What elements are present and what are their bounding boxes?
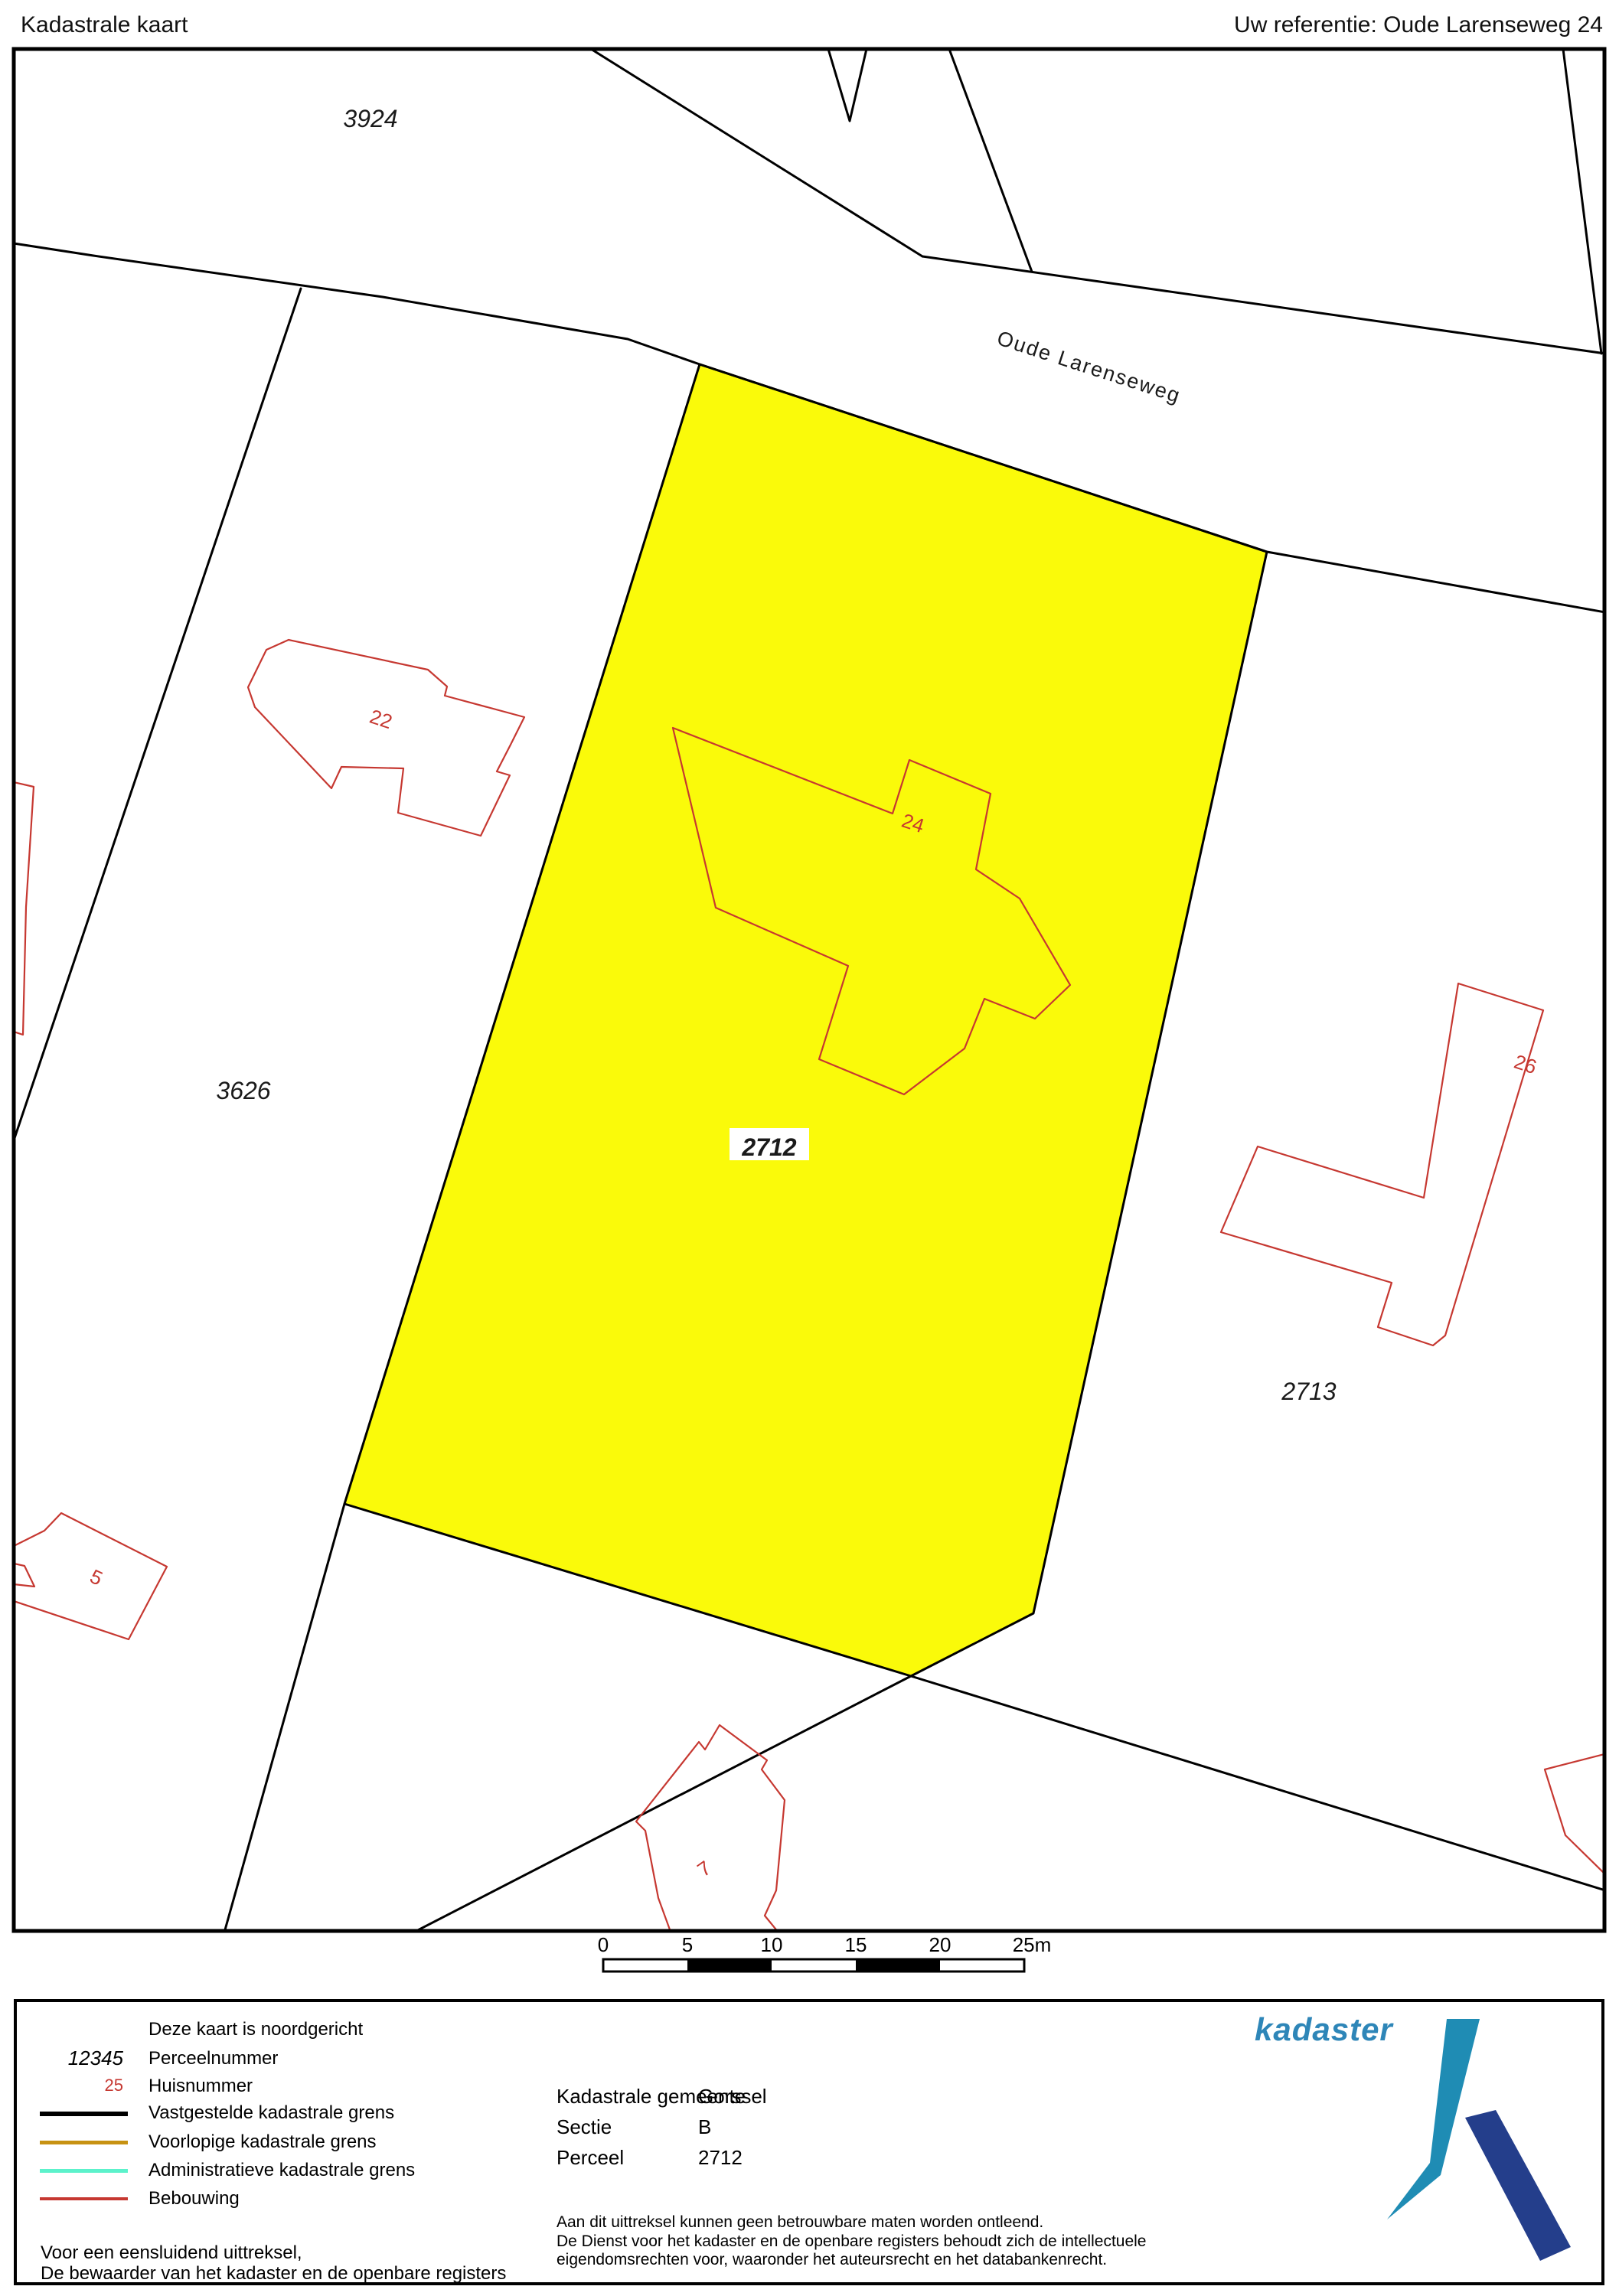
page: { "header": { "title": "Kadastrale kaart… — [0, 0, 1619, 2296]
info-label-sectie: Sectie — [557, 2115, 612, 2139]
road-label: Oude Larenseweg — [994, 326, 1184, 407]
info-value-gemeente: Gorssel — [698, 2085, 767, 2108]
boundary-top-notch — [828, 49, 867, 121]
scalebar-tick-2: 10 — [761, 1933, 783, 1956]
legend-line-buildings — [40, 2197, 128, 2200]
building-22 — [248, 640, 524, 836]
legend-box: Deze kaart is noordgericht 12345 Perceel… — [14, 1999, 1604, 2285]
cadastral-map: 3924 3626 2712 2713 22 24 26 5 7 Oude La… — [0, 0, 1619, 1990]
legend-label-housenumber: Huisnummer — [149, 2076, 253, 2097]
house-label-22: 22 — [367, 705, 395, 733]
legend-sample-parcelnumber: 12345 — [17, 2047, 123, 2070]
legend-line-established-boundary — [40, 2112, 128, 2116]
attestation-line-1: Voor een eensluidend uittreksel, — [41, 2242, 302, 2264]
house-label-7: 7 — [693, 1856, 715, 1881]
disclaimer-line-2: De Dienst voor het kadaster en de openba… — [557, 2232, 1146, 2251]
scalebar-tick-3: 15 — [845, 1933, 867, 1956]
parcel-label-3924: 3924 — [343, 105, 397, 132]
boundary-road-branch — [949, 49, 1032, 272]
parcel-label-2712: 2712 — [741, 1133, 796, 1161]
boundary-3626-west — [14, 289, 301, 1140]
building-left-sliver — [14, 782, 34, 1035]
scalebar-tick-1: 5 — [682, 1933, 693, 1956]
scalebar: 0 5 10 15 20 25m — [598, 1933, 1052, 1971]
legend-label-buildings: Bebouwing — [149, 2188, 240, 2210]
boundary-3924-east — [591, 49, 922, 256]
scalebar-segment-dark-2 — [856, 1959, 940, 1971]
boundary-topright-sliver — [1563, 49, 1601, 354]
info-label-perceel: Perceel — [557, 2146, 624, 2170]
info-value-sectie: B — [698, 2115, 711, 2139]
house-label-26: 26 — [1511, 1050, 1539, 1078]
attestation-line-2: De bewaarder van het kadaster en de open… — [41, 2263, 506, 2285]
kadaster-logo-mark — [1387, 2018, 1571, 2261]
scalebar-tick-0: 0 — [598, 1933, 609, 1956]
parcel-label-2713: 2713 — [1281, 1378, 1336, 1405]
info-value-perceel: 2712 — [698, 2146, 743, 2170]
building-26 — [1221, 983, 1543, 1345]
scalebar-tick-5: 25m — [1013, 1933, 1052, 1956]
logo-mark-dark-stroke — [1465, 2110, 1571, 2261]
legend-line-provisional-boundary — [40, 2141, 128, 2144]
legend-orientation-note: Deze kaart is noordgericht — [149, 2019, 363, 2040]
scalebar-tick-4: 20 — [929, 1933, 951, 1956]
boundary-3626-south — [224, 1504, 344, 1932]
building-bottomright-fragment — [1545, 1754, 1604, 1874]
legend-label-established-boundary: Vastgestelde kadastrale grens — [149, 2102, 394, 2124]
kadaster-logo-text: kadaster — [1255, 2011, 1393, 2048]
legend-line-administrative-boundary — [40, 2169, 128, 2173]
logo-mark-light-stroke — [1387, 2019, 1480, 2219]
parcel-label-3626: 3626 — [216, 1077, 270, 1104]
disclaimer-line-3: eigendomsrechten voor, waaronder het aut… — [557, 2251, 1107, 2269]
scalebar-bar — [603, 1959, 1024, 1971]
house-label-5: 5 — [86, 1564, 106, 1590]
boundary-bottom-wedge — [413, 1676, 911, 1932]
parcel-2712-highlight — [344, 364, 1267, 1676]
legend-label-administrative-boundary: Administratieve kadastrale grens — [149, 2160, 415, 2181]
legend-label-parcelnumber: Perceelnummer — [149, 2048, 278, 2069]
disclaimer-line-1: Aan dit uittreksel kunnen geen betrouwba… — [557, 2213, 1043, 2232]
boundary-2713-south — [911, 1676, 1605, 1890]
legend-label-provisional-boundary: Voorlopige kadastrale grens — [149, 2131, 377, 2153]
scalebar-segment-dark-1 — [687, 1959, 772, 1971]
legend-sample-housenumber: 25 — [17, 2076, 123, 2095]
